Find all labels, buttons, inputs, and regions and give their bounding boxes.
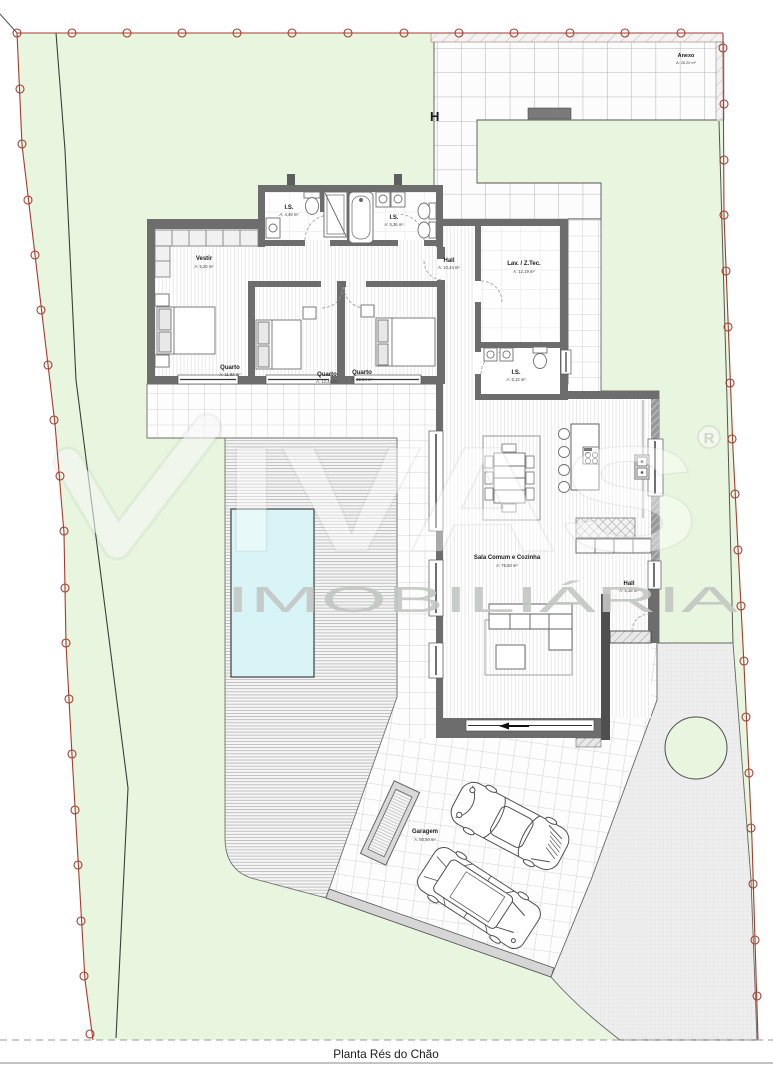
svg-text:Quarto: Quarto xyxy=(220,365,240,371)
svg-text:Anexo: Anexo xyxy=(678,53,695,59)
svg-text:H: H xyxy=(430,109,439,124)
svg-text:Lav. / Z.Tec.: Lav. / Z.Tec. xyxy=(507,261,541,267)
svg-text:A: 10,44 m²: A: 10,44 m² xyxy=(438,265,460,270)
svg-text:A: 60,50 m²: A: 60,50 m² xyxy=(414,837,436,842)
svg-text:A: 12,54 m²: A: 12,54 m² xyxy=(351,377,373,382)
svg-text:R: R xyxy=(704,430,715,447)
svg-text:IMOBILIÁRIA: IMOBILIÁRIA xyxy=(226,579,738,620)
svg-text:A: 5,13 m²: A: 5,13 m² xyxy=(506,377,526,382)
svg-text:Quarto: Quarto xyxy=(317,372,337,378)
svg-text:A: 11,82 m²: A: 11,82 m² xyxy=(219,372,241,377)
svg-text:Garagem: Garagem xyxy=(412,829,438,835)
svg-text:A: 5,20 m²: A: 5,20 m² xyxy=(194,264,214,269)
svg-text:A: 12,19 m²: A: 12,19 m² xyxy=(513,269,535,274)
svg-text:A: 26,20 m²: A: 26,20 m² xyxy=(676,61,696,65)
svg-text:IVAS: IVAS xyxy=(222,415,700,583)
svg-text:Hall: Hall xyxy=(443,258,454,264)
svg-text:A: 5,36 m²: A: 5,36 m² xyxy=(384,222,404,227)
svg-text:I.S.: I.S. xyxy=(389,215,398,221)
svg-text:Quarto: Quarto xyxy=(352,370,372,376)
svg-text:I.S.: I.S. xyxy=(284,205,293,211)
svg-text:Planta Rés do Chão: Planta Rés do Chão xyxy=(333,1047,439,1061)
svg-text:A: 12,45 m²: A: 12,45 m² xyxy=(316,379,338,384)
svg-text:I.S.: I.S. xyxy=(511,370,520,376)
svg-text:Vestir: Vestir xyxy=(196,256,213,262)
svg-text:A: 4,49 m²: A: 4,49 m² xyxy=(279,212,299,217)
